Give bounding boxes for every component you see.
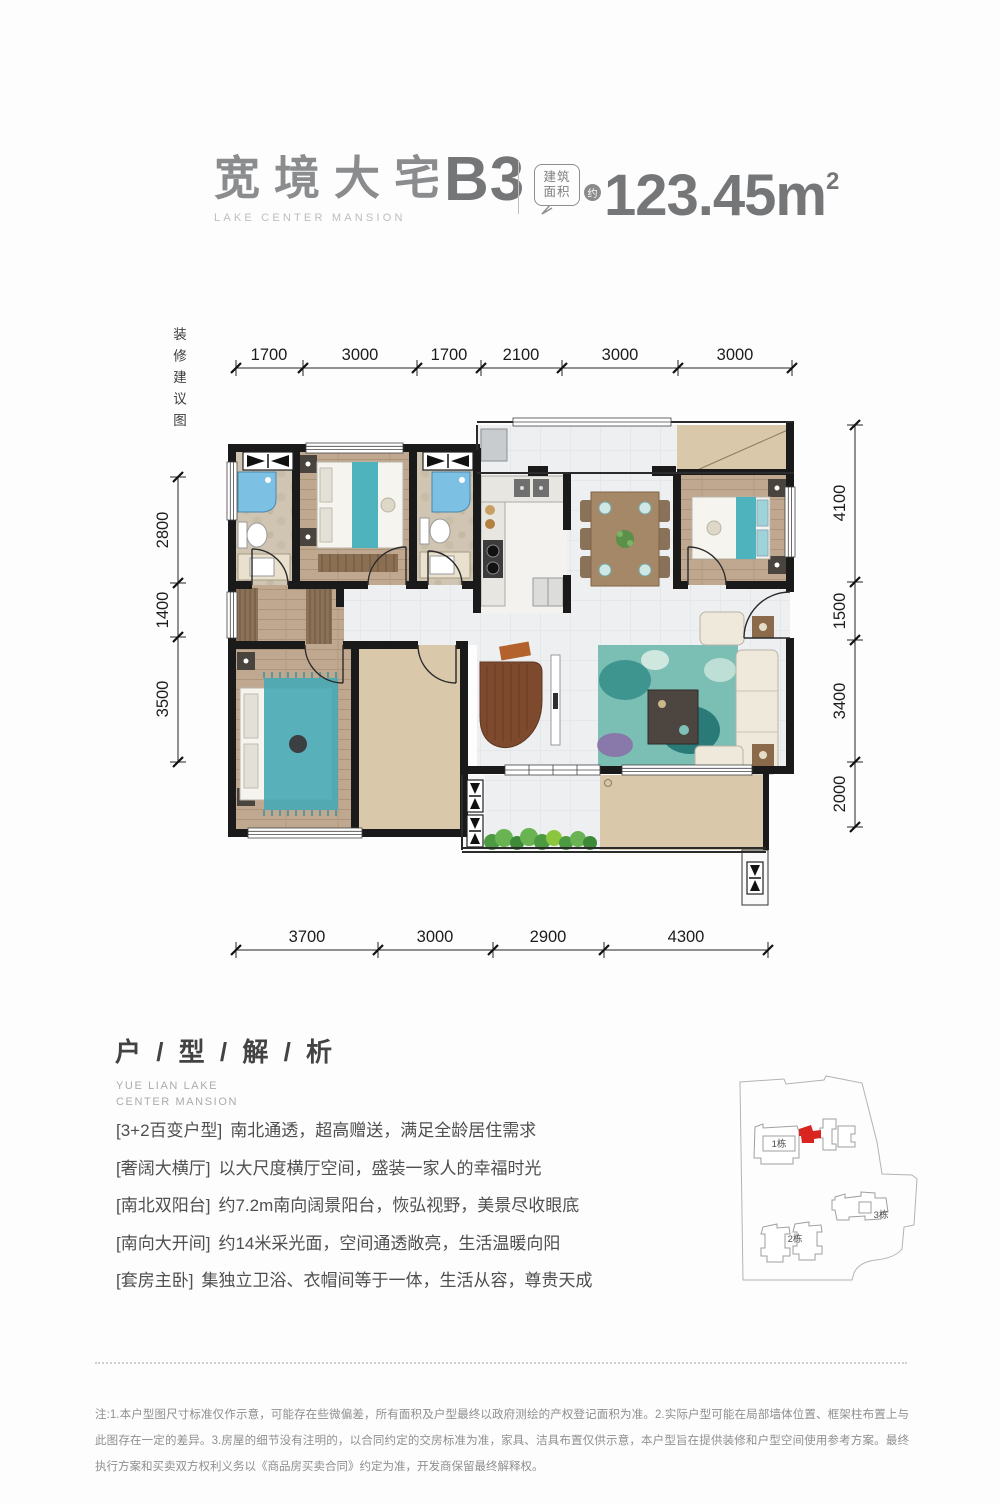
bathroom-1-window [227,462,237,520]
building-3-label: 3栋 [874,1209,889,1221]
living-room-window [622,765,752,775]
dim-top-2: 3000 [342,346,379,364]
feature-list: [3+2百变户型]南北通透，超高赠送，满足全龄居住需求 [奢阔大横厅]以大尺度横… [116,1112,676,1300]
dim-bottom-2: 3000 [417,928,454,946]
approx-badge: 约 [584,184,601,201]
project-subtitle: LAKE CENTER MANSION [214,212,454,224]
dim-top-4: 2100 [503,346,540,364]
area-exponent: 2 [826,168,839,195]
feature-item: [奢阔大横厅]以大尺度横厅空间，盛装一家人的幸福时光 [116,1150,676,1188]
northeast-balcony [677,425,790,473]
disclaimer-text: 注:1.本户型图尺寸标准仅作示意，可能存在些微偏差，所有面积及户型最终以政府测绘… [95,1402,909,1480]
analysis-subtitle-line2: CENTER MANSION [116,1094,238,1110]
dim-right-2: 1500 [831,593,849,630]
analysis-title: 户 / 型 / 解 / 析 [115,1032,336,1069]
dim-left-1: 2800 [154,512,172,549]
floor-plan: 1700 3000 1700 2100 3000 3000 3700 3000 … [150,315,950,975]
building-1: 1栋 [754,1119,855,1164]
bedroom-3-window [785,487,795,557]
dim-top-3: 1700 [431,346,468,364]
feature-tag: [南北双阳台] [116,1196,210,1215]
feature-text: 约14米采光面，空间通透敞亮，生活温暖向阳 [218,1234,560,1253]
ac-unit-icon [747,862,763,894]
dim-right-3: 3400 [831,683,849,720]
dining-set [580,492,670,586]
building-3: 3栋 [832,1192,889,1221]
feature-tag: [南向大开间] [116,1234,210,1253]
area-label-bubble: 建筑 面积 [534,164,580,206]
area-number-text: 123.45m [604,163,826,228]
area-label-line1: 建筑 [543,170,570,185]
ac-unit-icon [467,815,483,847]
dim-right-4: 2000 [831,776,849,813]
washing-machine [481,429,507,461]
building-1-label: 1栋 [772,1138,787,1150]
highlighted-unit [799,1125,821,1143]
feature-text: 以大尺度横厅空间，盛装一家人的幸福时光 [218,1159,541,1178]
area-value: 123.45m2 [604,150,839,228]
dotted-separator [95,1362,907,1364]
dim-top-1: 1700 [251,346,288,364]
header-divider [518,160,519,214]
dim-bottom-1: 3700 [289,928,326,946]
feature-tag: [套房主卧] [116,1271,193,1290]
dim-top-5: 3000 [602,346,639,364]
hallway-floor [344,585,477,645]
feature-item: [套房主卧]集独立卫浴、衣帽间等于一体，生活从容，尊贵天成 [116,1262,676,1300]
flyer-page: 宽境大宅 LAKE CENTER MANSION B3 建筑 面积 约 123.… [0,0,1000,1505]
site-map: 1栋 3栋 2栋 [733,1072,928,1292]
dim-left-3: 3500 [154,681,172,718]
feature-text: 约7.2m南向阔景阳台，恢弘视野，美景尽收眼底 [218,1196,579,1215]
ac-unit-icon [243,452,293,470]
ac-unit-icon [423,452,473,470]
building-2-label: 2栋 [788,1233,803,1245]
feature-item: [3+2百变户型]南北通透，超高赠送，满足全龄居住需求 [116,1112,676,1150]
south-balcony-floor [600,775,767,850]
dim-left-2: 1400 [154,592,172,629]
feature-item: [南向大开间]约14米采光面，空间通透敞亮，生活温暖向阳 [116,1225,676,1263]
master-bedroom-window [248,828,362,838]
ac-unit-icon [467,780,483,812]
feature-item: [南北双阳台]约7.2m南向阔景阳台，恢弘视野，美景尽收眼底 [116,1187,676,1225]
feature-tag: [奢阔大横厅] [116,1159,210,1178]
corridor-window [227,592,237,638]
balcony-sliding-door [505,765,600,775]
dim-top-6: 3000 [717,346,754,364]
area-label-line2: 面积 [543,185,570,200]
analysis-subtitle: YUE LIAN LAKE CENTER MANSION [116,1078,238,1110]
bedroom-2-window [306,443,403,453]
feature-text: 集独立卫浴、衣帽间等于一体，生活从容，尊贵天成 [201,1271,592,1290]
project-title-block: 宽境大宅 LAKE CENTER MANSION [214,150,454,224]
feature-text: 南北通透，超高赠送，满足全龄居住需求 [230,1121,536,1140]
project-title: 宽境大宅 [214,150,454,208]
north-balcony-window [513,418,671,426]
bubble-tail [540,205,554,215]
flex-room-floor [355,645,460,833]
dim-bottom-3: 2900 [530,928,567,946]
analysis-subtitle-line1: YUE LIAN LAKE [116,1078,238,1094]
dim-right-1: 4100 [831,485,849,522]
building-2: 2栋 [761,1222,822,1262]
unit-code: B3 [444,146,525,214]
dim-bottom-4: 4300 [668,928,705,946]
feature-tag: [3+2百变户型] [116,1121,222,1140]
